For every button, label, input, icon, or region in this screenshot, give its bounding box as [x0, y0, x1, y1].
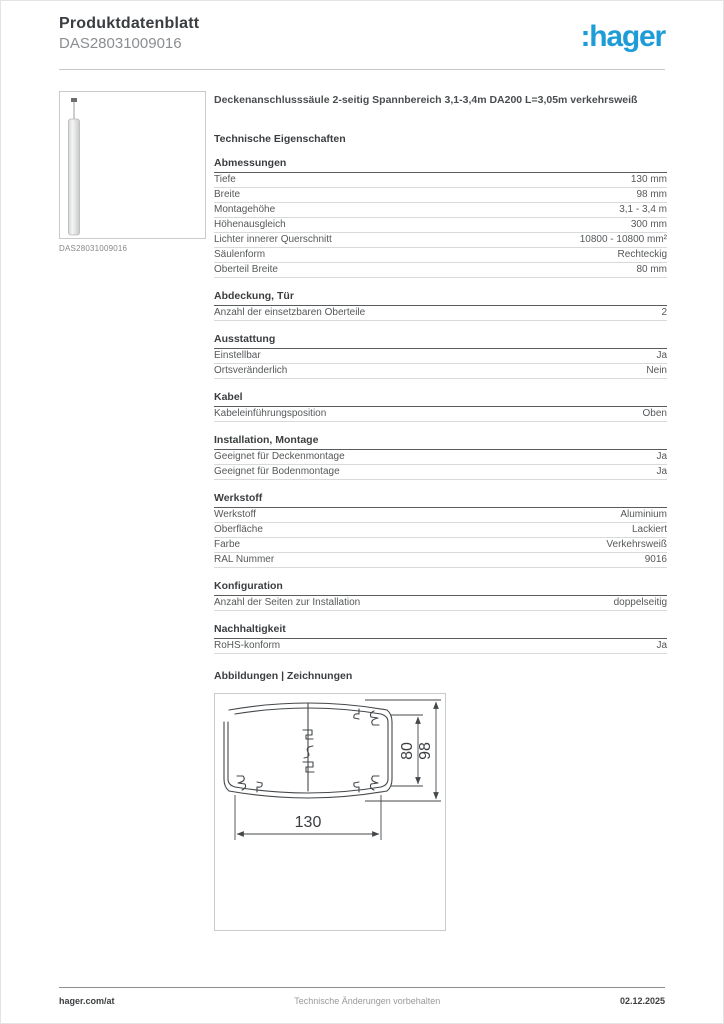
spec-label: Ortsveränderlich	[214, 365, 287, 376]
spec-section-title: Kabel	[214, 391, 667, 407]
product-datasheet-page: Produktdatenblatt DAS28031009016 :hager …	[0, 0, 724, 1024]
spec-row: FarbeVerkehrsweiß	[214, 538, 667, 553]
spec-label: Oberfläche	[214, 524, 263, 535]
profile-cross-section-drawing: 130 98 80	[215, 694, 445, 930]
spec-row: Oberteil Breite80 mm	[214, 263, 667, 278]
product-id: DAS28031009016	[59, 35, 199, 52]
spec-value: 10800 - 10800 mm²	[580, 234, 667, 245]
spec-section: NachhaltigkeitRoHS-konformJa	[214, 623, 667, 654]
spec-row: RAL Nummer9016	[214, 553, 667, 568]
spec-row: EinstellbarJa	[214, 349, 667, 364]
spec-label: Tiefe	[214, 174, 236, 185]
footer-website-link[interactable]: hager.com/at	[59, 996, 115, 1006]
spec-value: doppelseitig	[614, 597, 667, 608]
spec-row: Geeignet für DeckenmontageJa	[214, 450, 667, 465]
spec-section-title: Nachhaltigkeit	[214, 623, 667, 639]
spec-value: 9016	[645, 554, 667, 565]
spec-label: Oberteil Breite	[214, 264, 278, 275]
spec-section-title: Konfiguration	[214, 580, 667, 596]
spec-label: Einstellbar	[214, 350, 261, 361]
footer-divider	[59, 987, 665, 988]
spec-row: Höhenausgleich300 mm	[214, 218, 667, 233]
spec-label: Geeignet für Deckenmontage	[214, 451, 345, 462]
spec-row: SäulenformRechteckig	[214, 248, 667, 263]
spec-value: Verkehrsweiß	[606, 539, 667, 550]
spec-row: Tiefe130 mm	[214, 173, 667, 188]
spec-label: Breite	[214, 189, 240, 200]
spec-value: 130 mm	[631, 174, 667, 185]
dim-width-label: 130	[295, 814, 322, 831]
spec-row: RoHS-konformJa	[214, 639, 667, 654]
spec-value: Ja	[656, 466, 667, 477]
content-column: Deckenanschlusssäule 2-seitig Spannberei…	[214, 91, 667, 931]
spec-row: Montagehöhe3,1 - 3,4 m	[214, 203, 667, 218]
spec-row: OberflächeLackiert	[214, 523, 667, 538]
spec-label: Kabeleinführungsposition	[214, 408, 326, 419]
product-photo-column-icon	[60, 92, 205, 238]
spec-label: Werkstoff	[214, 509, 256, 520]
spec-section: Installation, MontageGeeignet für Decken…	[214, 434, 667, 480]
spec-section-title: Ausstattung	[214, 333, 667, 349]
spec-value: 2	[661, 307, 667, 318]
spec-section-title: Installation, Montage	[214, 434, 667, 450]
spec-section: AbmessungenTiefe130 mmBreite98 mmMontage…	[214, 157, 667, 278]
spec-value: Nein	[646, 365, 667, 376]
dim-outer-height-label: 98	[417, 742, 434, 760]
spec-section: AusstattungEinstellbarJaOrtsveränderlich…	[214, 333, 667, 379]
spec-value: Ja	[656, 350, 667, 361]
dim-inner-height-label: 80	[399, 742, 416, 760]
spec-value: Oben	[643, 408, 667, 419]
spec-row: WerkstoffAluminium	[214, 508, 667, 523]
spec-value: 98 mm	[636, 189, 667, 200]
spec-row: Breite98 mm	[214, 188, 667, 203]
spec-section-title: Abmessungen	[214, 157, 667, 173]
spec-row: Anzahl der einsetzbaren Oberteile2	[214, 306, 667, 321]
technical-drawing-panel: 130 98 80	[214, 693, 446, 931]
spec-value: Ja	[656, 451, 667, 462]
spec-section: KonfigurationAnzahl der Seiten zur Insta…	[214, 580, 667, 611]
spec-label: Farbe	[214, 539, 240, 550]
spec-label: RAL Nummer	[214, 554, 274, 565]
spec-row: Geeignet für BodenmontageJa	[214, 465, 667, 480]
product-image-caption: DAS28031009016	[59, 244, 127, 253]
spec-label: Höhenausgleich	[214, 219, 286, 230]
spec-label: Montagehöhe	[214, 204, 275, 215]
header-divider	[59, 69, 665, 70]
drawings-heading: Abbildungen | Zeichnungen	[214, 670, 667, 682]
hager-logo: :hager	[581, 22, 666, 52]
spec-value: Ja	[656, 640, 667, 651]
spec-section: Abdeckung, TürAnzahl der einsetzbaren Ob…	[214, 290, 667, 321]
spec-row: Lichter innerer Querschnitt10800 - 10800…	[214, 233, 667, 248]
spec-value: 300 mm	[631, 219, 667, 230]
header-title-group: Produktdatenblatt DAS28031009016	[59, 15, 199, 52]
spec-section: WerkstoffWerkstoffAluminiumOberflächeLac…	[214, 492, 667, 568]
spec-sections: AbmessungenTiefe130 mmBreite98 mmMontage…	[214, 157, 667, 654]
spec-label: Anzahl der Seiten zur Installation	[214, 597, 360, 608]
footer-disclaimer: Technische Änderungen vorbehalten	[294, 996, 440, 1006]
spec-value: 3,1 - 3,4 m	[619, 204, 667, 215]
spec-label: RoHS-konform	[214, 640, 280, 651]
doc-type-title: Produktdatenblatt	[59, 15, 199, 33]
page-header: Produktdatenblatt DAS28031009016 :hager	[59, 15, 665, 52]
product-title: Deckenanschlusssäule 2-seitig Spannberei…	[214, 94, 667, 108]
spec-row: OrtsveränderlichNein	[214, 364, 667, 379]
spec-section-title: Abdeckung, Tür	[214, 290, 667, 306]
spec-label: Lichter innerer Querschnitt	[214, 234, 332, 245]
spec-value: 80 mm	[636, 264, 667, 275]
spec-row: KabeleinführungspositionOben	[214, 407, 667, 422]
spec-label: Anzahl der einsetzbaren Oberteile	[214, 307, 365, 318]
spec-section: KabelKabeleinführungspositionOben	[214, 391, 667, 422]
spec-section-title: Werkstoff	[214, 492, 667, 508]
tech-properties-heading: Technische Eigenschaften	[214, 133, 667, 145]
spec-row: Anzahl der Seiten zur Installationdoppel…	[214, 596, 667, 611]
spec-label: Geeignet für Bodenmontage	[214, 466, 340, 477]
spec-value: Rechteckig	[618, 249, 667, 260]
product-image-panel	[59, 91, 206, 239]
spec-value: Aluminium	[620, 509, 667, 520]
spec-value: Lackiert	[632, 524, 667, 535]
spec-label: Säulenform	[214, 249, 265, 260]
footer-date: 02.12.2025	[620, 996, 665, 1006]
page-footer: hager.com/at Technische Änderungen vorbe…	[59, 996, 665, 1006]
